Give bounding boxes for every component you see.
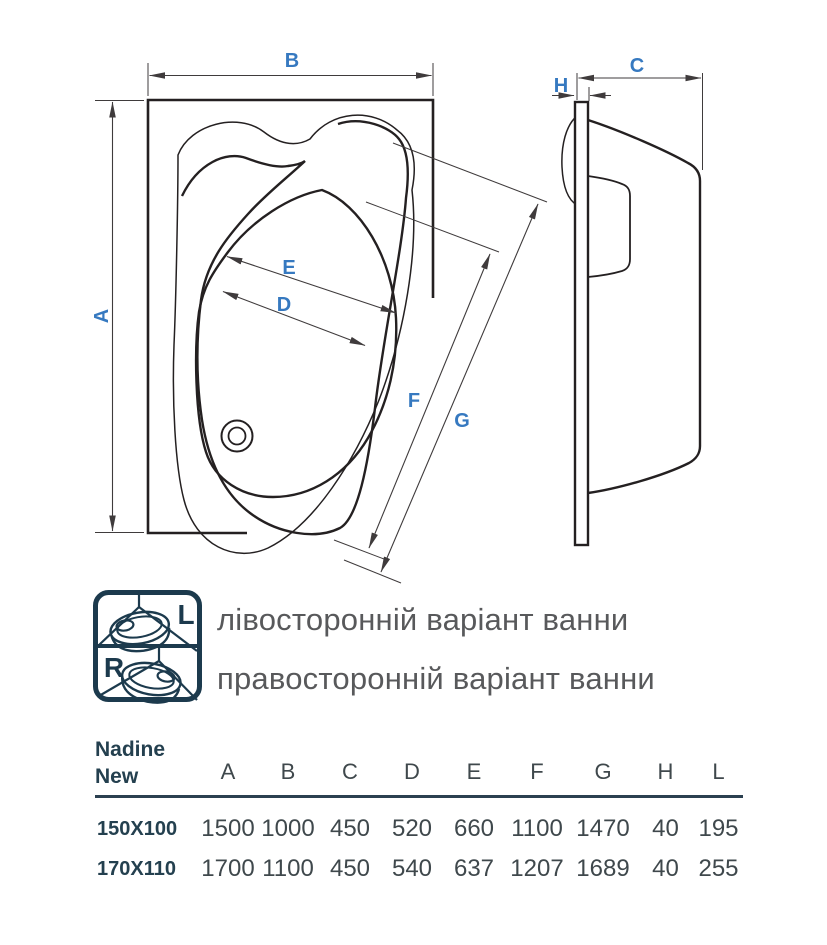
dimension-table: Nadine New A B C D E F G H L 150X100 150… — [95, 735, 743, 889]
dim-line-f — [369, 254, 490, 548]
table-cell: 450 — [319, 809, 381, 849]
right-variant-caption: правосторонній варіант ванни — [217, 661, 655, 697]
table-cell: 1207 — [505, 849, 569, 889]
table-cell: 255 — [694, 849, 743, 889]
left-variant-caption: лівосторонній варіант ванни — [217, 602, 628, 638]
dim-line-g — [381, 204, 538, 572]
column-header: E — [443, 735, 505, 787]
table-cell: 1700 — [199, 849, 257, 889]
table-cell: 520 — [381, 809, 443, 849]
table-cell: 1689 — [569, 849, 637, 889]
legend-letter-r: R — [104, 652, 124, 683]
table-cell: 40 — [637, 809, 694, 849]
table-cell: 1500 — [199, 809, 257, 849]
side-profile — [588, 120, 700, 493]
dim-label-g: G — [454, 410, 470, 432]
table-cell: 450 — [319, 849, 381, 889]
column-header: L — [694, 735, 743, 787]
ext-line — [334, 540, 384, 559]
table-cell: 540 — [381, 849, 443, 889]
side-seat-ledge — [588, 176, 630, 277]
table-cell: 1000 — [257, 809, 319, 849]
tub-outer-rim — [173, 115, 414, 553]
table-divider — [95, 795, 743, 798]
dim-label-e: E — [282, 257, 295, 279]
table-cell: 40 — [637, 849, 694, 889]
column-header: C — [319, 735, 381, 787]
ext-line — [393, 143, 547, 202]
top-view — [148, 100, 433, 553]
dim-label-b: B — [285, 50, 299, 72]
table-title-line1: Nadine — [95, 736, 199, 763]
orientation-legend-icon: L R — [96, 593, 200, 707]
side-view — [562, 102, 700, 545]
ext-line — [344, 560, 401, 583]
table-cell: 1100 — [505, 809, 569, 849]
bathtub-spec-sheet: B A E D F G C H — [0, 0, 827, 945]
table-cell: 195 — [694, 809, 743, 849]
dim-label-a: A — [91, 309, 113, 323]
drain-inner-circle — [229, 428, 246, 445]
tub-basin-outline — [196, 190, 396, 497]
table-cell: 1100 — [257, 849, 319, 889]
size-label: 150X100 — [95, 809, 199, 849]
column-header: F — [505, 735, 569, 787]
table-cell: 637 — [443, 849, 505, 889]
dim-label-d: D — [277, 294, 291, 316]
drain-outer-circle — [222, 421, 253, 452]
size-label: 170X110 — [95, 849, 199, 889]
dim-label-h: H — [554, 75, 568, 97]
column-header: D — [381, 735, 443, 787]
side-panel — [575, 102, 588, 545]
column-header: G — [569, 735, 637, 787]
table-cell: 660 — [443, 809, 505, 849]
dim-line-d — [223, 292, 365, 346]
dim-line-e — [227, 257, 396, 314]
column-header: A — [199, 735, 257, 787]
legend-letter-l: L — [177, 599, 194, 630]
dim-label-f: F — [408, 390, 420, 412]
table-title-line2: New — [95, 763, 199, 790]
table-title: Nadine New — [95, 735, 199, 786]
dim-label-c: C — [630, 55, 644, 77]
column-header: B — [257, 735, 319, 787]
column-header: H — [637, 735, 694, 787]
table-cell: 1470 — [569, 809, 637, 849]
